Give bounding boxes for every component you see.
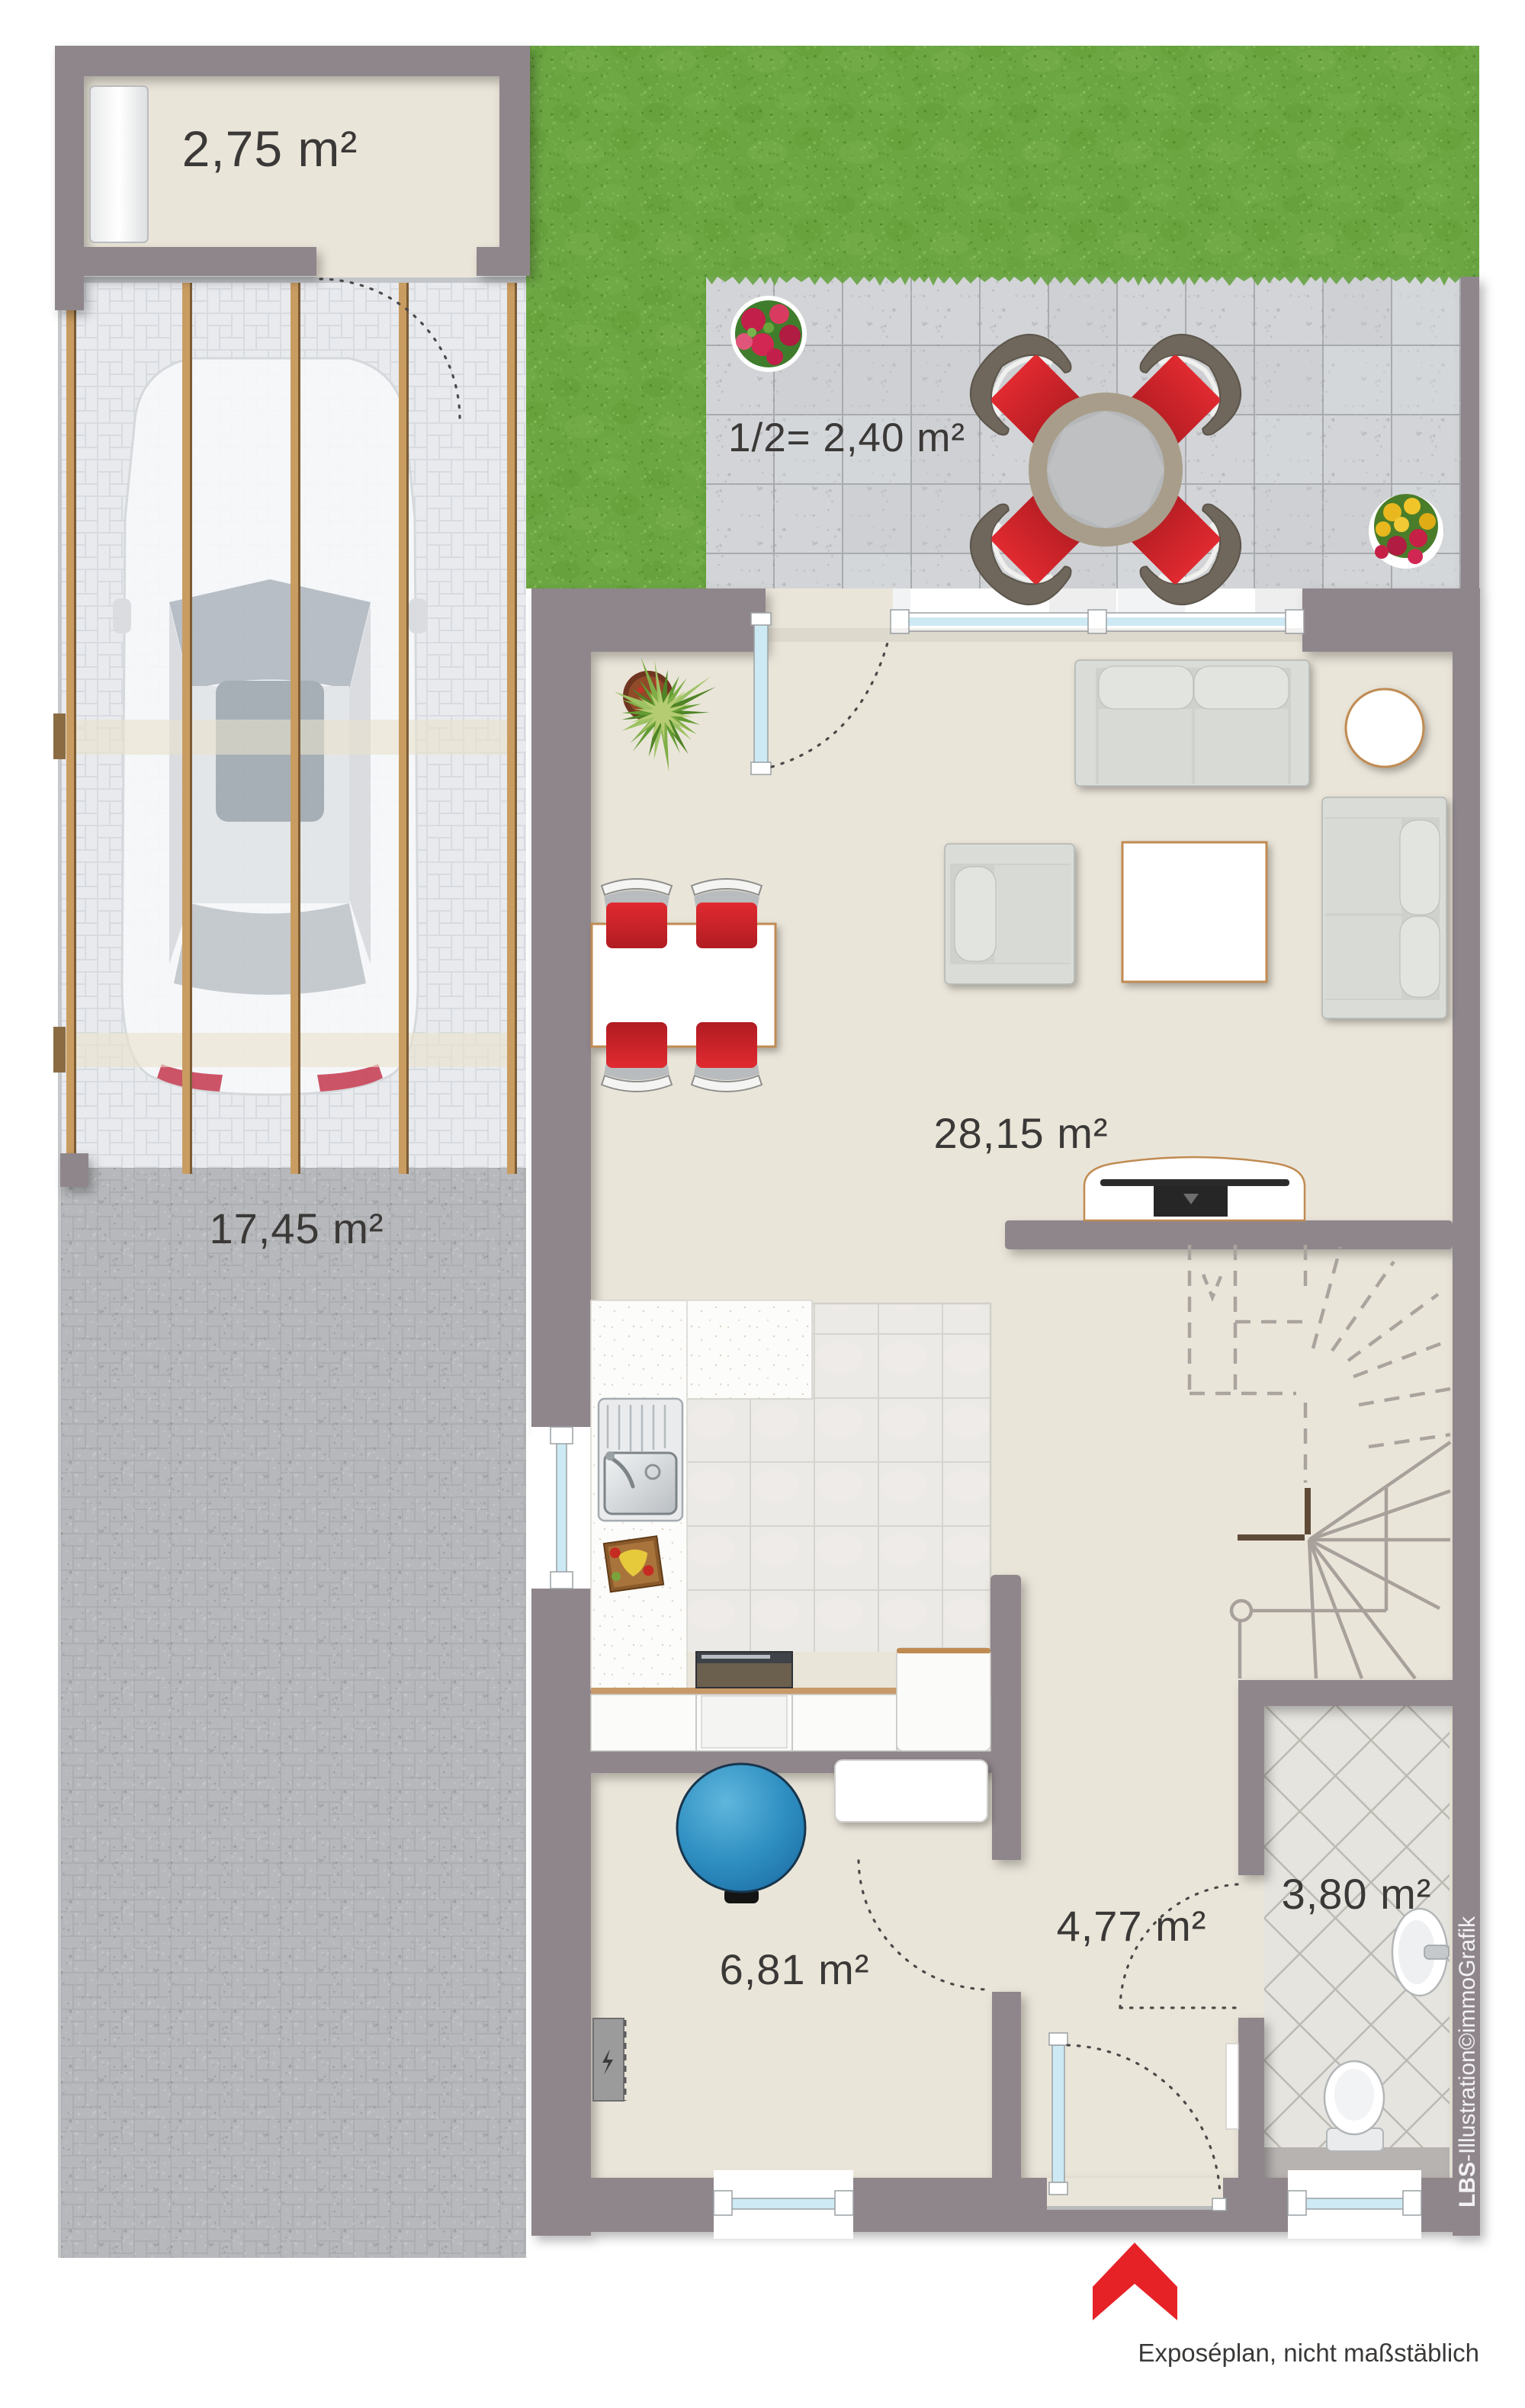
svg-text:Exposéplan, nicht maßstäblich: Exposéplan, nicht maßstäblich [1138,2339,1479,2367]
svg-text:4,77 m²: 4,77 m² [1057,1902,1207,1950]
svg-text:LBS-Illustration©immoGrafik: LBS-Illustration©immoGrafik [1455,1916,1480,2208]
svg-text:3,80 m²: 3,80 m² [1282,1870,1432,1918]
svg-text:2,75 m²: 2,75 m² [182,120,358,177]
svg-text:6,81 m²: 6,81 m² [720,1945,870,1993]
svg-text:28,15 m²: 28,15 m² [934,1109,1109,1157]
svg-text:17,45 m²: 17,45 m² [210,1204,384,1252]
svg-text:1/2= 2,40 m²: 1/2= 2,40 m² [728,415,965,460]
